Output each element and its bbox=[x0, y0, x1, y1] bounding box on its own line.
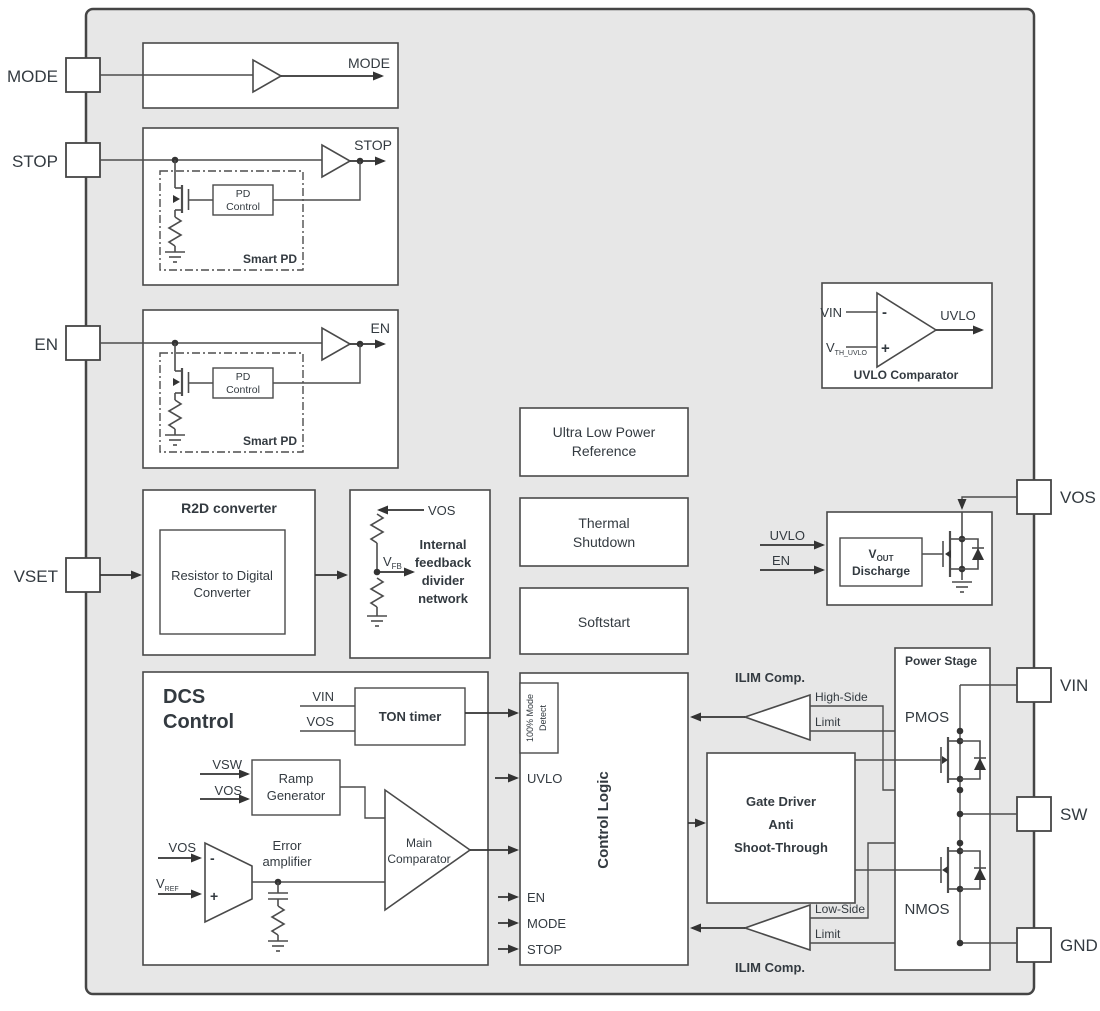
vos-label: VOS bbox=[428, 503, 456, 518]
discharge-en-label: EN bbox=[772, 553, 790, 568]
stop-input-block: STOP Smart PD PD Control bbox=[100, 128, 398, 285]
thermal-label: Shutdown bbox=[573, 534, 635, 550]
r2d-inner-label: Resistor to Digital bbox=[171, 568, 273, 583]
reference-label: Reference bbox=[572, 443, 637, 459]
error-amp-label: Error bbox=[273, 838, 303, 853]
plus-sign: + bbox=[881, 340, 890, 357]
erramp-vos-label: VOS bbox=[169, 840, 197, 855]
ramp-label: Ramp bbox=[279, 771, 314, 786]
pin-gnd: GND bbox=[1017, 928, 1098, 962]
smart-pd-label: Smart PD bbox=[243, 434, 297, 448]
main-comp-label: Comparator bbox=[387, 852, 450, 866]
ton-vos-label: VOS bbox=[307, 714, 335, 729]
en-input-block: EN Smart PD PD Control bbox=[100, 310, 398, 468]
mode-input-block: MODE bbox=[100, 43, 398, 108]
ton-timer-label: TON timer bbox=[379, 709, 442, 724]
thermal-shutdown-block: Thermal Shutdown bbox=[520, 498, 688, 566]
mode-detect-label: 100% Mode bbox=[525, 694, 535, 742]
ton-vin-label: VIN bbox=[312, 689, 334, 704]
minus-sign: - bbox=[882, 304, 887, 321]
pin-gnd-label: GND bbox=[1060, 936, 1098, 955]
gate-driver-label: Gate Driver bbox=[746, 794, 816, 809]
gate-driver-label: Shoot-Through bbox=[734, 840, 828, 855]
pin-vin: VIN bbox=[1017, 668, 1088, 702]
thermal-label: Thermal bbox=[578, 515, 629, 531]
control-logic-title: Control Logic bbox=[595, 771, 612, 869]
pin-sw-label: SW bbox=[1060, 805, 1087, 824]
control-logic-block: 100% Mode Detect Control Logic UVLO EN M… bbox=[495, 673, 704, 965]
softstart-block: Softstart bbox=[520, 588, 688, 654]
stop-output-label: STOP bbox=[354, 137, 392, 153]
low-side-limit-label: Limit bbox=[815, 927, 841, 941]
pin-sw: SW bbox=[1017, 797, 1087, 831]
mode-detect-label: Detect bbox=[538, 704, 548, 731]
mode-output-label: MODE bbox=[348, 55, 390, 71]
high-side-limit-label: Limit bbox=[815, 715, 841, 729]
low-side-limit-label: Low-Side bbox=[815, 902, 865, 916]
uvlo-output-label: UVLO bbox=[940, 308, 975, 323]
pd-control-label: PD bbox=[236, 188, 251, 200]
error-amp-label: amplifier bbox=[262, 854, 312, 869]
ramp-vos-label: VOS bbox=[215, 783, 243, 798]
minus-sign: - bbox=[210, 850, 215, 866]
ramp-label: Generator bbox=[267, 788, 326, 803]
pin-stop-label: STOP bbox=[12, 152, 58, 171]
pin-vos-label: VOS bbox=[1060, 488, 1096, 507]
ilim-low-title: ILIM Comp. bbox=[735, 960, 805, 975]
pin-vin-label: VIN bbox=[1060, 676, 1088, 695]
uvlo-comparator-block: VIN - VTH_UVLO + UVLO UVLO Comparator bbox=[820, 283, 992, 388]
pin-en-label: EN bbox=[34, 335, 58, 354]
pin-vset-label: VSET bbox=[14, 567, 58, 586]
block-diagram: MODE STOP EN VSET VOS VIN SW GND MODE bbox=[0, 0, 1100, 1006]
cl-uvlo-label: UVLO bbox=[527, 771, 562, 786]
discharge-uvlo-label: UVLO bbox=[770, 528, 805, 543]
en-output-label: EN bbox=[371, 320, 390, 336]
dcs-title: Control bbox=[163, 711, 234, 733]
pd-control-label: Control bbox=[226, 384, 260, 396]
ramp-vsw-label: VSW bbox=[212, 757, 242, 772]
cl-stop-label: STOP bbox=[527, 942, 562, 957]
pin-stop: STOP bbox=[12, 143, 100, 177]
smart-pd-label: Smart PD bbox=[243, 252, 297, 266]
cl-mode-label: MODE bbox=[527, 916, 566, 931]
feedback-label: feedback bbox=[415, 555, 472, 570]
pd-control-label: Control bbox=[226, 201, 260, 213]
pd-control-label: PD bbox=[236, 371, 251, 383]
r2d-inner-label: Converter bbox=[193, 585, 251, 600]
uvlo-comparator-title: UVLO Comparator bbox=[854, 368, 959, 382]
r2d-title: R2D converter bbox=[181, 500, 277, 516]
feedback-divider-block: VOS VFB Internal feedback divider networ… bbox=[350, 490, 490, 658]
gate-driver-block: Gate Driver Anti Shoot-Through bbox=[707, 753, 855, 903]
pin-mode: MODE bbox=[7, 58, 100, 92]
plus-sign: + bbox=[210, 888, 218, 904]
main-comp-label: Main bbox=[406, 836, 432, 850]
feedback-label: Internal bbox=[420, 537, 467, 552]
feedback-label: divider bbox=[422, 573, 465, 588]
softstart-label: Softstart bbox=[578, 614, 630, 630]
gate-driver-label: Anti bbox=[768, 817, 793, 832]
reference-label: Ultra Low Power bbox=[553, 424, 656, 440]
ilim-high-title: ILIM Comp. bbox=[735, 670, 805, 685]
pin-mode-label: MODE bbox=[7, 67, 58, 86]
pmos-label: PMOS bbox=[905, 709, 949, 726]
uvlo-vin-label: VIN bbox=[820, 305, 842, 320]
pin-vset: VSET bbox=[14, 558, 100, 592]
dcs-control-block: DCS Control VIN VOS TON timer VSW VOS Ra… bbox=[143, 672, 517, 965]
nmos-label: NMOS bbox=[905, 901, 950, 918]
power-stage-title: Power Stage bbox=[905, 654, 977, 668]
feedback-label: network bbox=[418, 591, 469, 606]
reference-block: Ultra Low Power Reference bbox=[520, 408, 688, 476]
cl-en-label: EN bbox=[527, 890, 545, 905]
discharge-label: Discharge bbox=[852, 564, 910, 578]
pin-en: EN bbox=[34, 326, 100, 360]
high-side-limit-label: High-Side bbox=[815, 690, 868, 704]
pin-vos: VOS bbox=[1017, 480, 1096, 514]
dcs-title: DCS bbox=[163, 686, 205, 708]
